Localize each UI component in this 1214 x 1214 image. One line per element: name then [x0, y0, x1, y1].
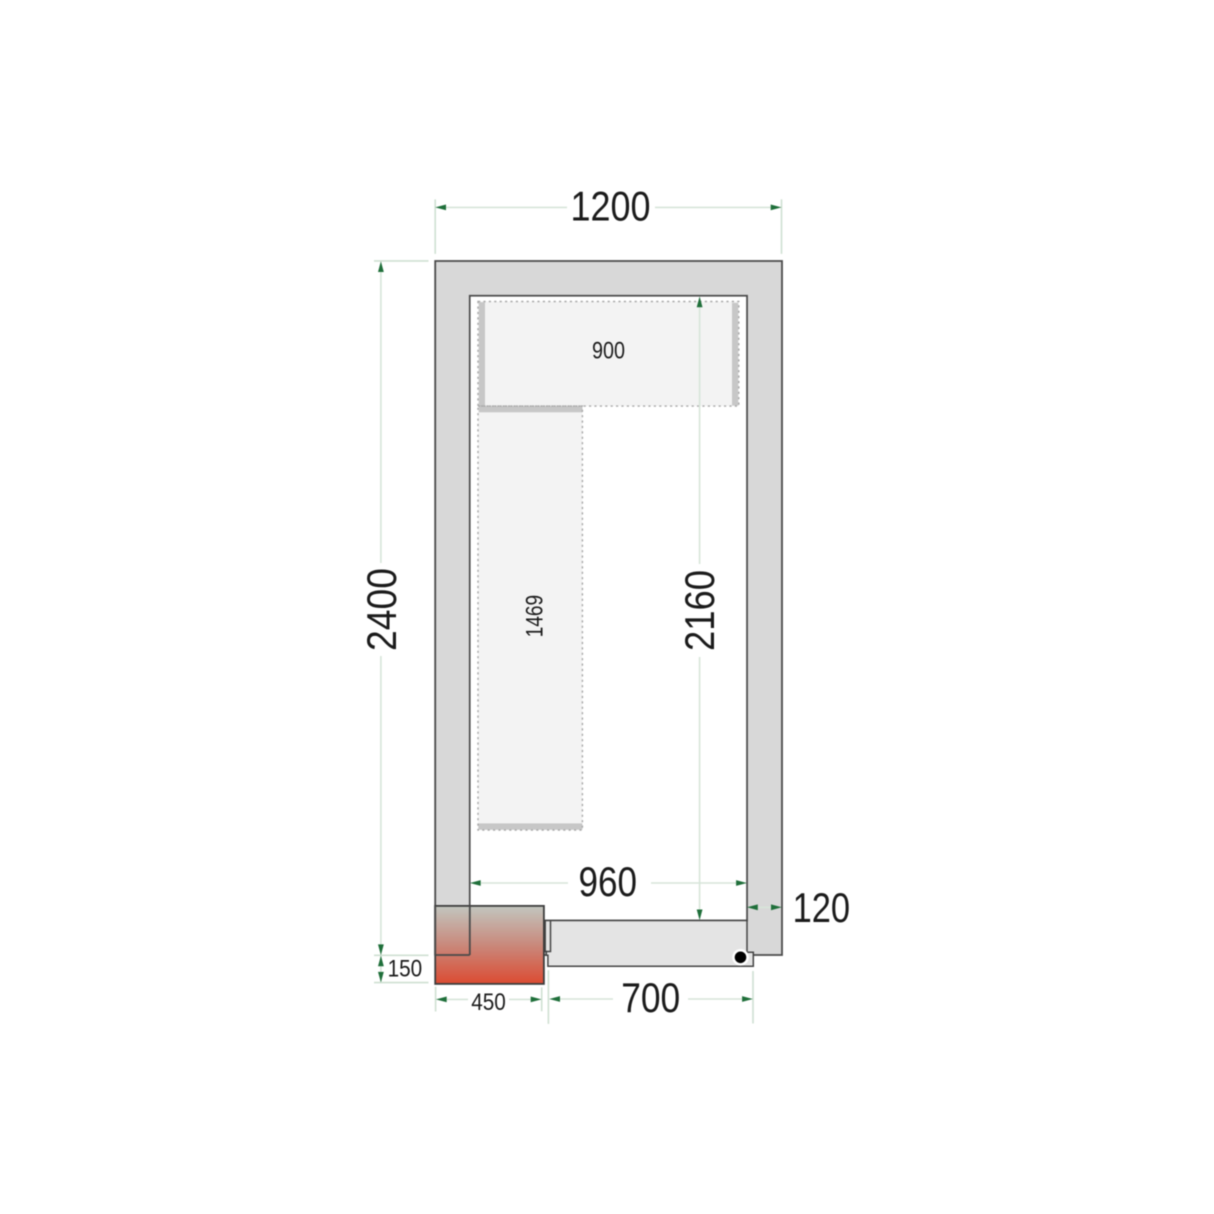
- svg-text:150: 150: [388, 956, 423, 983]
- svg-text:960: 960: [579, 858, 638, 905]
- svg-text:2400: 2400: [358, 568, 405, 651]
- svg-text:120: 120: [793, 884, 851, 931]
- svg-text:2160: 2160: [676, 570, 723, 651]
- svg-text:450: 450: [471, 989, 506, 1016]
- svg-text:700: 700: [621, 974, 680, 1021]
- svg-text:900: 900: [592, 337, 625, 364]
- svg-text:1200: 1200: [571, 183, 651, 230]
- svg-text:1469: 1469: [522, 595, 549, 638]
